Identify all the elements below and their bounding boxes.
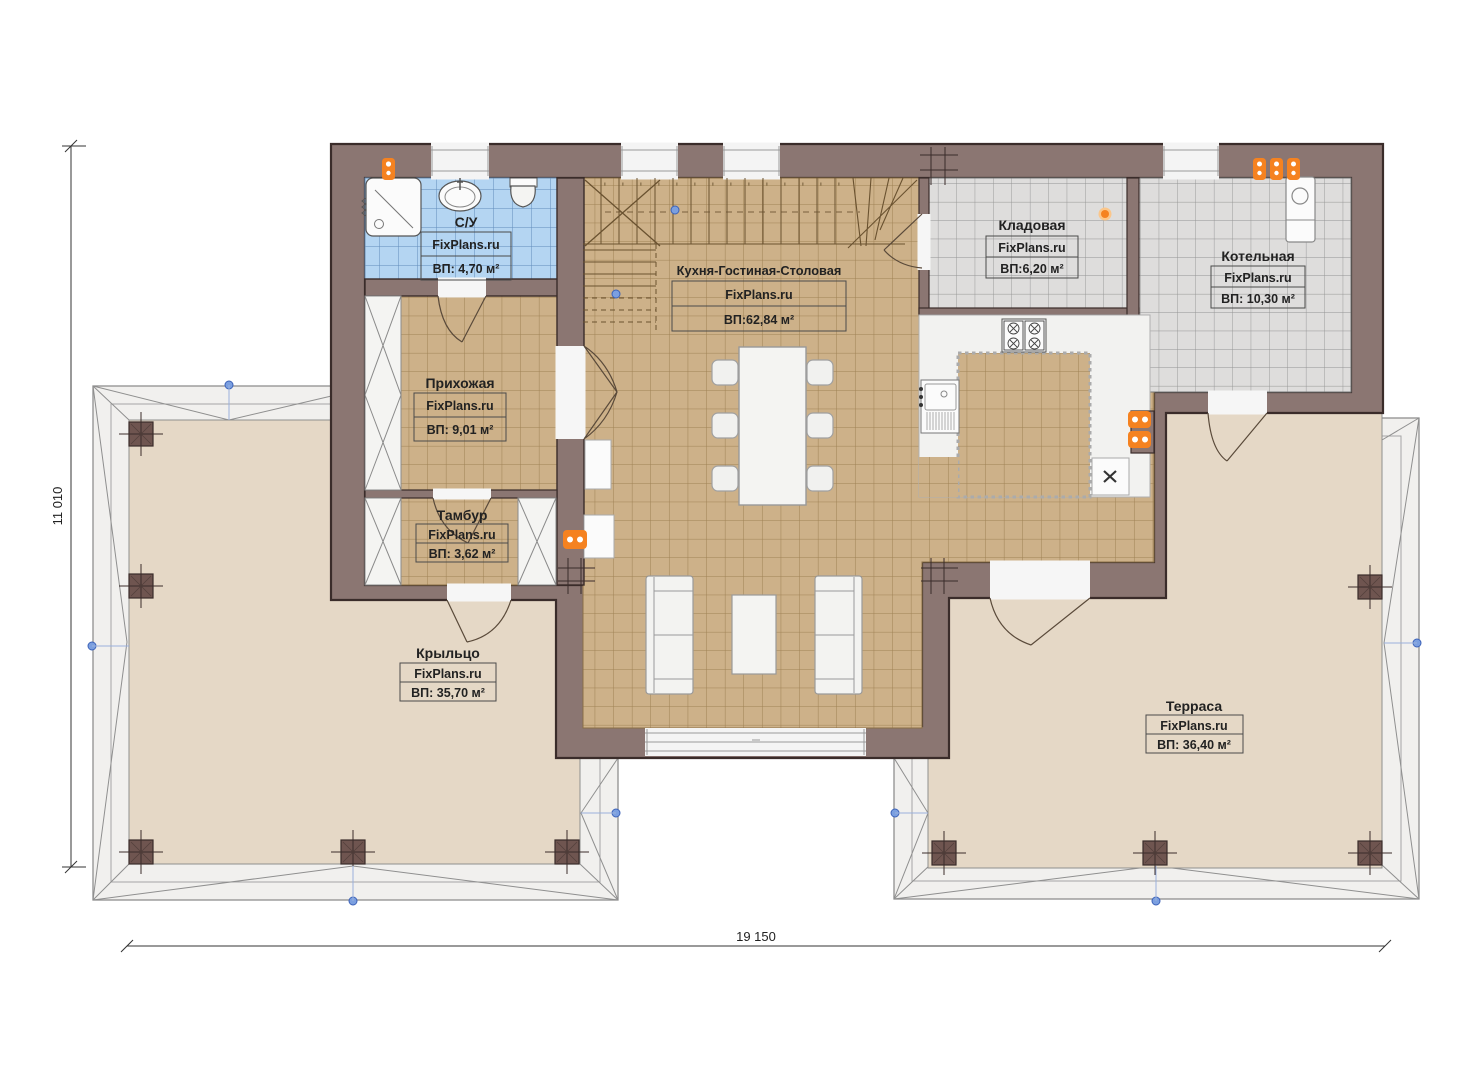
svg-text:11 010: 11 010 — [50, 487, 65, 526]
svg-text:Крыльцо: Крыльцо — [416, 645, 480, 661]
svg-text:Кладовая: Кладовая — [998, 217, 1065, 233]
svg-text:FixPlans.ru: FixPlans.ru — [426, 399, 493, 413]
svg-text:Терраса: Терраса — [1166, 698, 1222, 714]
svg-text:ВП: 9,01 м²: ВП: 9,01 м² — [427, 423, 494, 437]
svg-text:Кухня-Гостиная-Столовая: Кухня-Гостиная-Столовая — [677, 263, 842, 278]
svg-text:FixPlans.ru: FixPlans.ru — [1224, 271, 1291, 285]
svg-text:FixPlans.ru: FixPlans.ru — [725, 288, 792, 302]
svg-text:ВП: 35,70 м²: ВП: 35,70 м² — [411, 686, 485, 700]
svg-text:ВП: 10,30 м²: ВП: 10,30 м² — [1221, 292, 1295, 306]
svg-text:FixPlans.ru: FixPlans.ru — [432, 238, 499, 252]
svg-text:FixPlans.ru: FixPlans.ru — [1160, 719, 1227, 733]
svg-text:ВП: 4,70 м²: ВП: 4,70 м² — [433, 262, 500, 276]
svg-text:ВП:6,20 м²: ВП:6,20 м² — [1000, 262, 1063, 276]
svg-text:FixPlans.ru: FixPlans.ru — [428, 528, 495, 542]
svg-text:Тамбур: Тамбур — [437, 507, 488, 523]
svg-text:FixPlans.ru: FixPlans.ru — [414, 667, 481, 681]
svg-text:19 150: 19 150 — [736, 929, 776, 944]
svg-text:ВП: 3,62 м²: ВП: 3,62 м² — [429, 547, 496, 561]
svg-text:ВП:62,84 м²: ВП:62,84 м² — [724, 313, 794, 327]
svg-text:ВП: 36,40 м²: ВП: 36,40 м² — [1157, 738, 1231, 752]
svg-text:С/У: С/У — [455, 214, 478, 230]
svg-text:FixPlans.ru: FixPlans.ru — [998, 241, 1065, 255]
svg-text:Прихожая: Прихожая — [425, 375, 494, 391]
svg-text:Котельная: Котельная — [1221, 248, 1294, 264]
